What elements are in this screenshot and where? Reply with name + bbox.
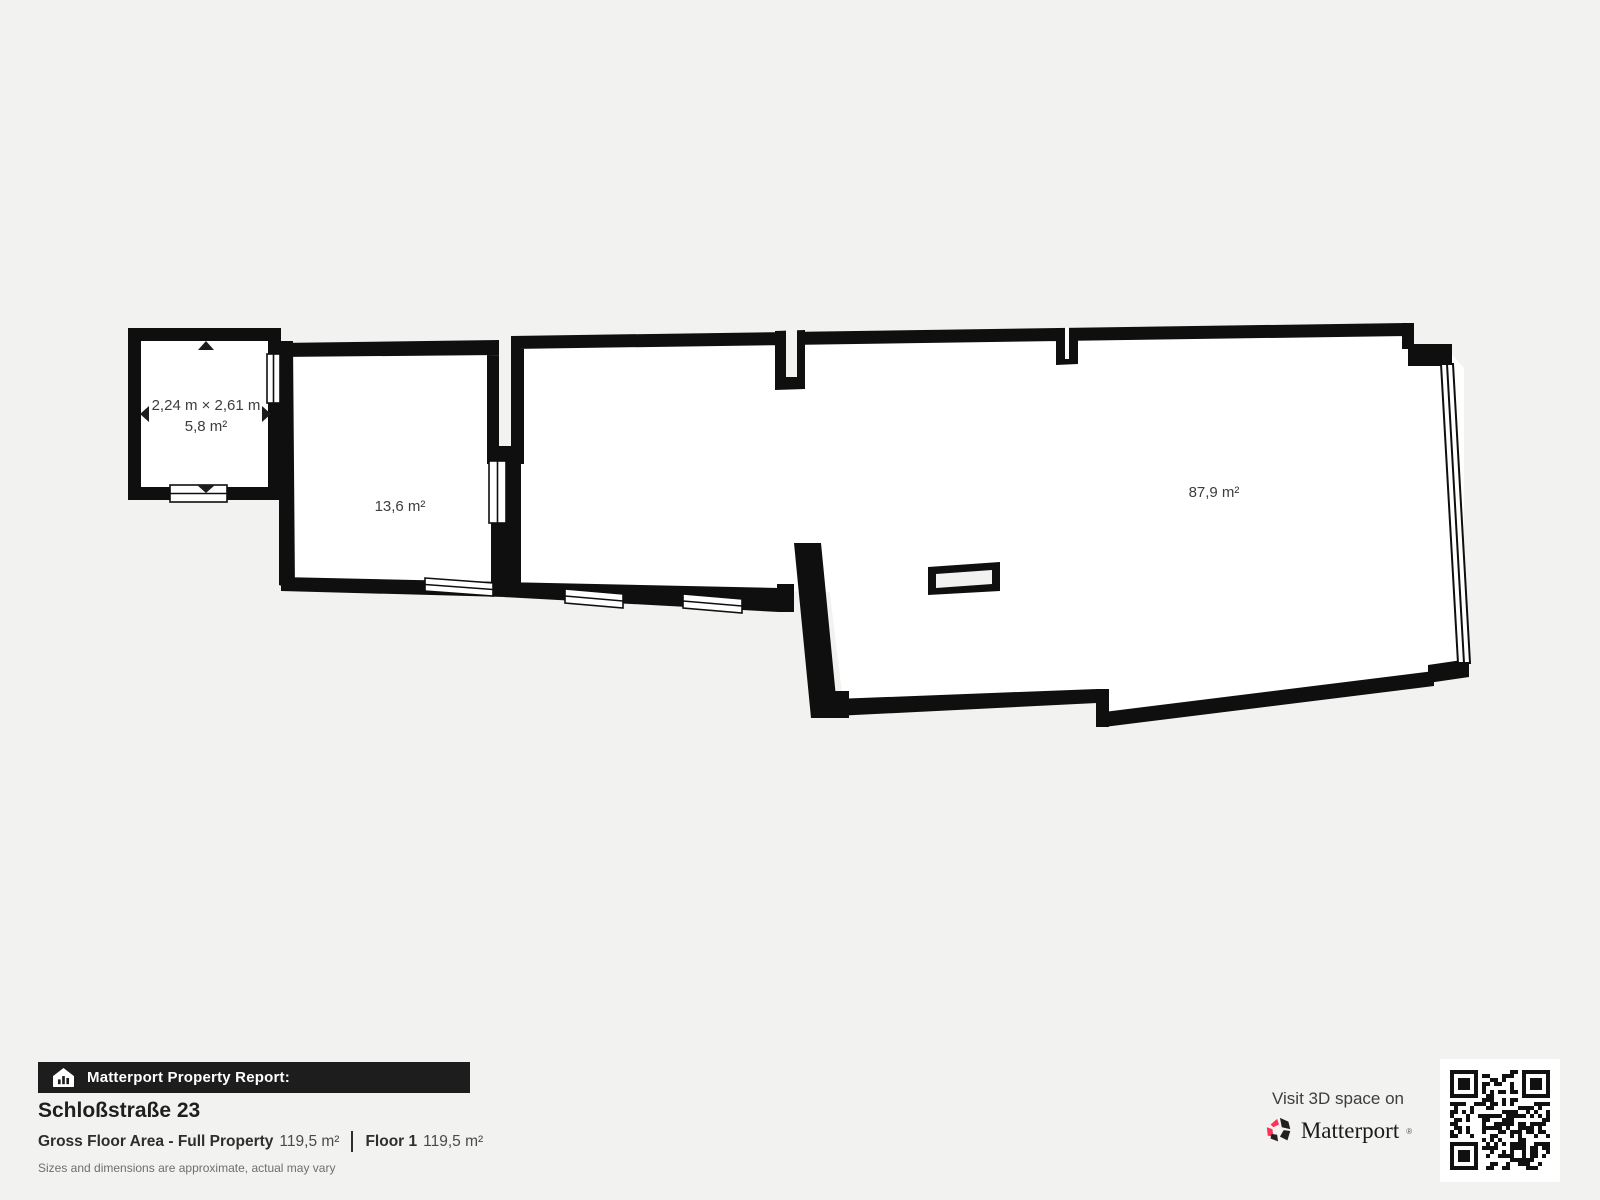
room-middle-fill xyxy=(286,346,498,590)
room-main-area: 87,9 m² xyxy=(1189,484,1240,501)
brand-trademark: ® xyxy=(1406,1127,1412,1136)
visit-3d-link[interactable]: Visit 3D space on Matterport® xyxy=(1248,1089,1428,1146)
room-small-fill xyxy=(134,334,275,494)
gross-floor-value: 119,5 m² xyxy=(279,1133,339,1151)
wall-slit xyxy=(1065,327,1069,359)
room-small-dimensions: 2,24 m × 2,61 m xyxy=(152,397,261,414)
property-address: Schloßstraße 23 xyxy=(38,1099,200,1123)
room-fills xyxy=(134,334,1464,719)
gross-floor-label: Gross Floor Area - Full Property xyxy=(38,1133,273,1151)
report-canvas: 2,24 m × 2,61 m 5,8 m² 13,6 m² 87,9 m² M… xyxy=(0,0,1600,1200)
banner-label: Matterport Property Report: xyxy=(87,1069,290,1086)
matterport-wordmark: Matterport xyxy=(1301,1118,1399,1144)
window-small-bottom xyxy=(170,485,227,502)
disclaimer-text: Sizes and dimensions are approximate, ac… xyxy=(38,1161,335,1175)
stats-divider xyxy=(351,1131,353,1152)
house-icon xyxy=(52,1067,75,1088)
window-divider xyxy=(489,461,506,523)
floorplan: 2,24 m × 2,61 m 5,8 m² 13,6 m² 87,9 m² xyxy=(0,0,1600,1200)
room-small-area: 5,8 m² xyxy=(185,418,228,435)
floor-opening xyxy=(928,562,1000,595)
qr-code xyxy=(1440,1059,1560,1182)
window-small-right xyxy=(267,354,280,403)
visit-3d-text: Visit 3D space on xyxy=(1248,1089,1428,1109)
area-stats: Gross Floor Area - Full Property 119,5 m… xyxy=(38,1131,483,1152)
report-banner: Matterport Property Report: xyxy=(38,1062,470,1093)
floor-label: Floor 1 xyxy=(365,1133,417,1151)
matterport-logo-icon xyxy=(1264,1116,1294,1146)
room-middle-area: 13,6 m² xyxy=(375,498,426,515)
room-main-fill xyxy=(805,334,1464,719)
wall-notch xyxy=(786,329,797,377)
floor-value: 119,5 m² xyxy=(423,1133,483,1151)
